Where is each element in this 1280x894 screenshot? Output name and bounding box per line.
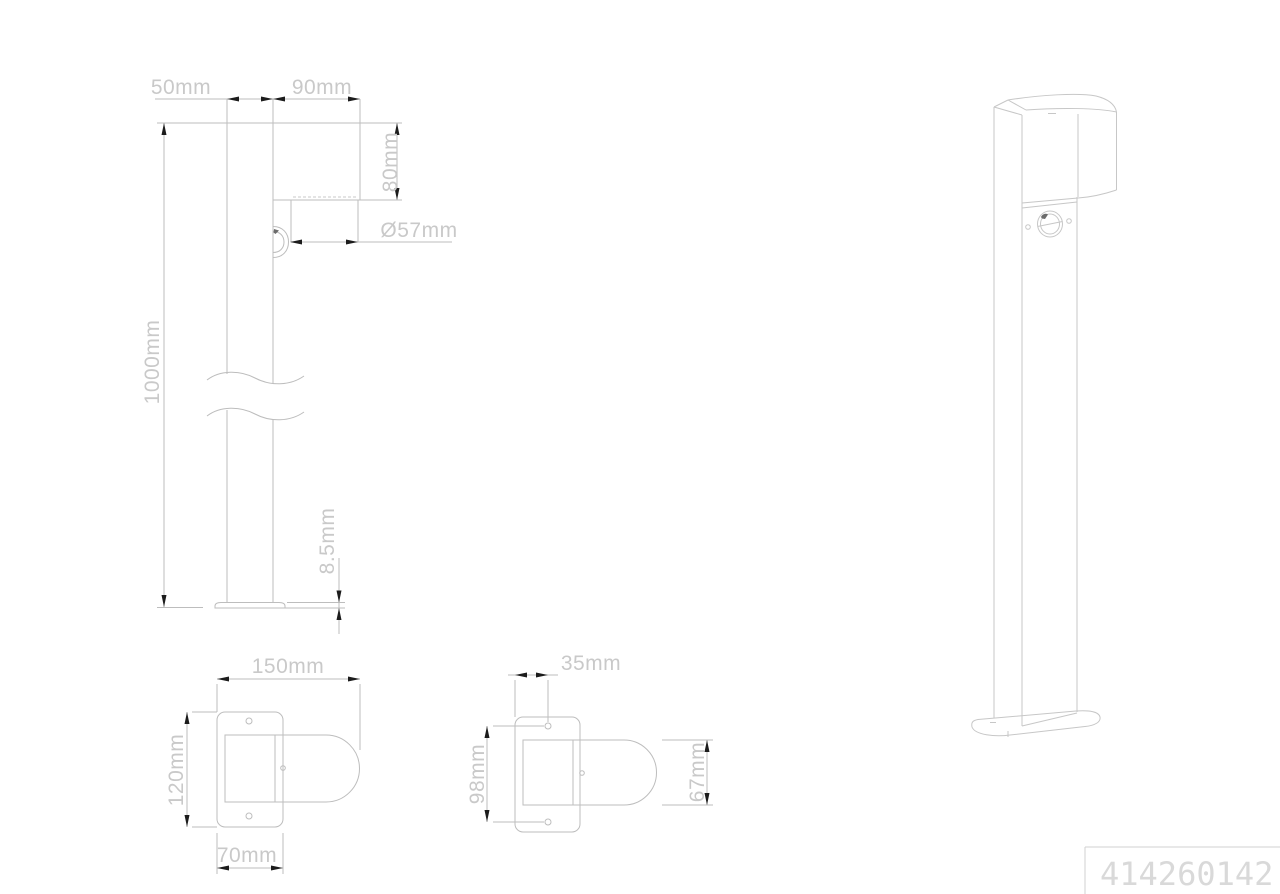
arrowhead: [485, 810, 490, 822]
dim-plate-length-label: 120mm: [165, 734, 188, 807]
dimension-120mm-lines: [187, 712, 217, 827]
head-outline: [273, 123, 360, 200]
base-plate-outline: [515, 717, 580, 832]
dim-head-width-label: 67mm: [686, 742, 709, 802]
arrowhead: [348, 677, 360, 682]
pole-under-head-edge: [1022, 202, 1077, 208]
arrowhead: [346, 240, 358, 245]
dimension-35mm-lines: [508, 675, 558, 722]
arrowhead: [227, 97, 239, 102]
arrowhead: [290, 240, 302, 245]
mounting-hole: [545, 819, 551, 825]
article-number: 414260142: [1100, 855, 1273, 893]
arrowhead: [337, 591, 342, 603]
sensor-screw: [1067, 219, 1072, 224]
base-plate-marks: [990, 723, 1008, 738]
pole-cross-section: [523, 740, 573, 805]
base-plate-side: [215, 603, 285, 609]
head-bottom-edge: [1022, 190, 1117, 203]
arrowhead: [261, 97, 273, 102]
mounting-hole: [246, 813, 252, 819]
arrowhead: [217, 677, 229, 682]
dim-overall-depth-label: 150mm: [252, 655, 325, 678]
arrowhead: [337, 608, 342, 620]
motion-sensor-split-line: [1038, 222, 1063, 227]
lamp-head-outline: [573, 740, 657, 805]
arrowhead: [273, 97, 285, 102]
mounting-hole: [246, 718, 252, 724]
dim-plate-width-label: 70mm: [217, 844, 277, 867]
mounting-hole: [545, 723, 551, 729]
dim-pole-depth-label: 50mm: [151, 76, 211, 99]
dim-overall-height-label: 1000mm: [141, 320, 164, 405]
head-top-front-edge: [1026, 108, 1117, 112]
arrowhead: [485, 726, 490, 738]
technical-drawing-page: 50mm 90mm 80mm Ø57mm 1000mm 8.5mm 150mm …: [0, 0, 1280, 894]
dim-base-thickness-label: 8.5mm: [316, 508, 339, 575]
arrowhead: [162, 123, 167, 135]
pole-cross-section: [225, 735, 275, 802]
title-block: 414260142: [1085, 847, 1280, 894]
sensor-detail: [274, 229, 280, 234]
dim-head-depth-label: 90mm: [292, 76, 352, 99]
technical-drawing-canvas: 50mm 90mm 80mm Ø57mm 1000mm 8.5mm 150mm …: [0, 0, 1280, 894]
sensor-dome-inner: [273, 232, 284, 253]
side-view: 50mm 90mm 80mm Ø57mm 1000mm 8.5mm: [141, 76, 458, 634]
break-line-lower: [207, 408, 304, 420]
base-plate-outline: [217, 712, 283, 827]
pole-top-face: [994, 100, 1026, 115]
dim-hole-spacing-label: 98mm: [466, 744, 489, 804]
dim-lens-diameter-label: Ø57mm: [380, 219, 457, 242]
dim-head-height-label: 80mm: [379, 132, 402, 192]
base-plate-perspective: [972, 711, 1100, 736]
arrowhead: [162, 595, 167, 607]
dim-hole-offset-label: 35mm: [561, 652, 621, 675]
perspective-view: [972, 94, 1117, 737]
break-line-upper: [207, 372, 304, 384]
arrowhead: [185, 815, 190, 827]
lamp-head-outline: [275, 735, 360, 802]
arrowhead: [185, 712, 190, 724]
mounting-top-view: 35mm 98mm 67mm: [466, 652, 713, 832]
sensor-screw: [1026, 225, 1031, 230]
arrowhead: [536, 673, 548, 678]
base-top-view: 150mm 120mm 70mm: [165, 655, 360, 874]
arrowhead: [515, 673, 527, 678]
dimension-150mm-lines: [217, 679, 360, 750]
